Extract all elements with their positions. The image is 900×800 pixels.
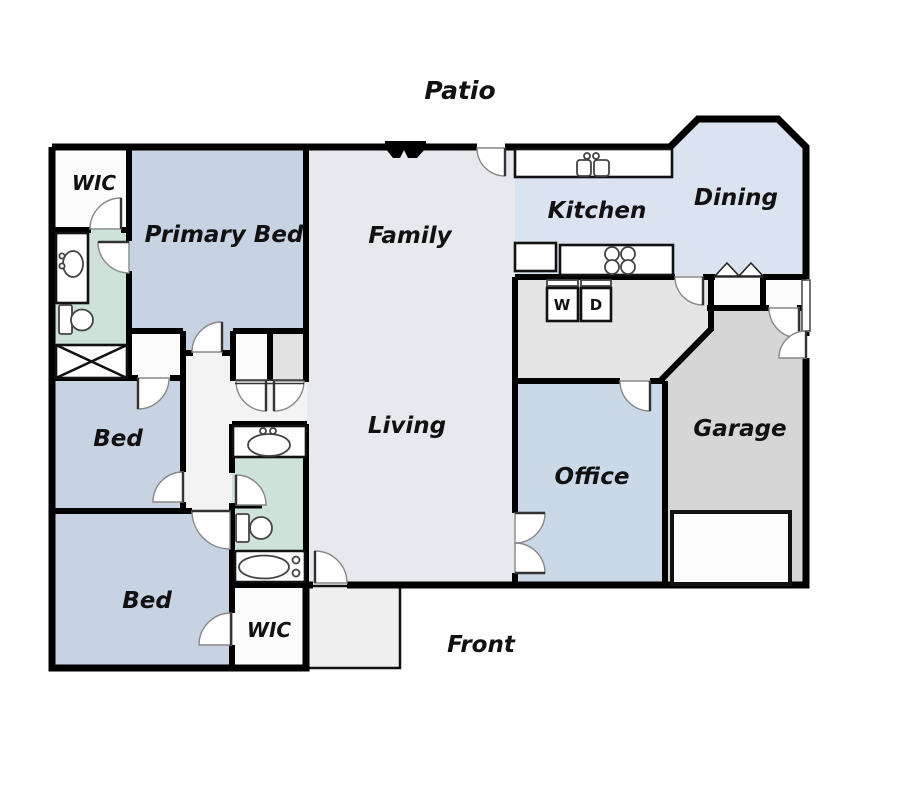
label-primary-bed: Primary Bed xyxy=(145,222,304,248)
label-kitchen: Kitchen xyxy=(548,198,647,224)
label-garage: Garage xyxy=(693,416,786,442)
bathtub-basin-icon xyxy=(239,556,289,579)
label-patio: Patio xyxy=(424,76,495,105)
window xyxy=(802,280,810,331)
front-porch xyxy=(306,586,400,668)
garage-door xyxy=(672,512,790,584)
tub-knob-icon xyxy=(293,570,300,577)
label-living: Living xyxy=(368,413,446,439)
closet-hall-right xyxy=(271,331,306,381)
faucet-icon xyxy=(270,428,276,434)
toilet-bowl-icon xyxy=(71,310,93,331)
label-bed-lower: Bed xyxy=(122,588,172,614)
washer-panel xyxy=(547,280,578,286)
faucet-icon xyxy=(593,153,599,159)
stove-burner-icon xyxy=(605,247,619,261)
label-washer: W xyxy=(554,296,571,314)
closet-entry xyxy=(763,277,806,308)
toilet-tank-icon xyxy=(236,514,249,542)
tub-knob-icon xyxy=(293,557,300,564)
label-dryer: D xyxy=(590,296,602,314)
dryer-panel xyxy=(581,280,611,286)
sink-icon xyxy=(248,434,290,456)
sink-icon xyxy=(63,251,83,277)
closet-hall-left xyxy=(233,331,269,381)
stove-burner-icon xyxy=(621,247,635,261)
faucet-icon xyxy=(260,428,266,434)
faucet-icon xyxy=(59,253,64,258)
closet-dining xyxy=(711,277,763,307)
faucet-icon xyxy=(584,153,590,159)
faucet-icon xyxy=(59,263,64,268)
stove-burner-icon xyxy=(605,260,619,274)
label-wic-lower: WIC xyxy=(247,618,292,642)
label-office: Office xyxy=(555,464,630,490)
shower-closet-x-icon xyxy=(56,345,127,378)
closet-primary xyxy=(133,331,183,379)
toilet-tank-icon xyxy=(59,305,72,334)
kitchen-sink-icon xyxy=(594,160,609,176)
label-wic-upper: WIC xyxy=(72,171,117,195)
toilet-bowl-icon xyxy=(250,517,272,539)
kitchen-sink-icon xyxy=(577,160,591,176)
kitchen-island xyxy=(515,243,556,271)
label-bed-upper: Bed xyxy=(93,426,143,452)
floor-plan: Patio Family Living Kitchen Dining Prima… xyxy=(0,0,900,800)
label-family: Family xyxy=(368,223,452,249)
label-front: Front xyxy=(447,632,516,658)
stove-burner-icon xyxy=(621,260,635,274)
room-family-living xyxy=(306,147,515,583)
hallway xyxy=(184,352,232,512)
label-dining: Dining xyxy=(694,185,778,211)
